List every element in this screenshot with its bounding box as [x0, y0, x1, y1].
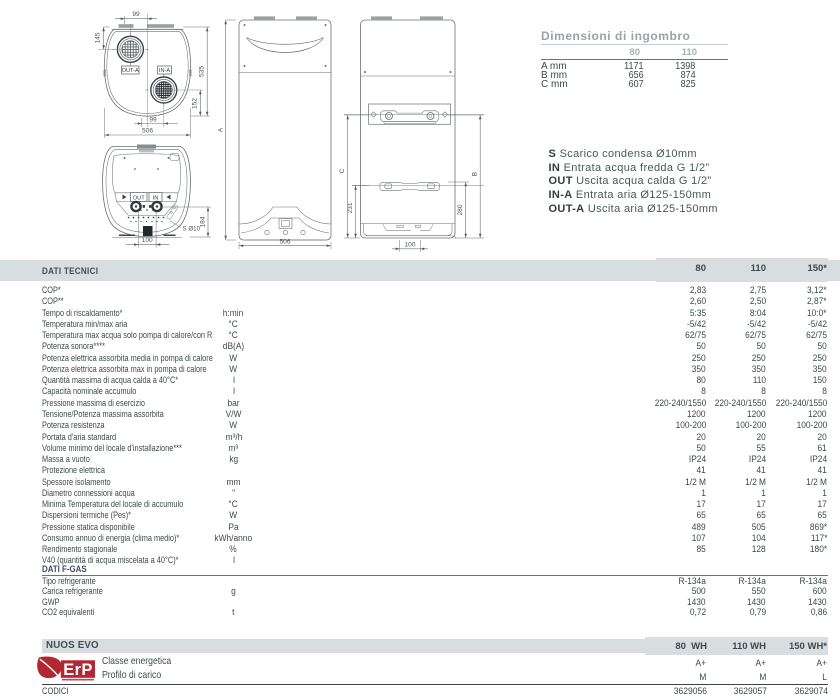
svg-text:OUT-A: OUT-A — [122, 68, 139, 74]
svg-text:ErP: ErP — [63, 661, 93, 679]
svg-text:152: 152 — [192, 98, 199, 109]
svg-text:100: 100 — [142, 237, 153, 244]
svg-text:S Ø10: S Ø10 — [183, 226, 201, 233]
svg-text:OUT: OUT — [133, 195, 146, 201]
svg-text:IN: IN — [153, 195, 159, 201]
svg-text:231: 231 — [347, 202, 354, 213]
svg-text:99: 99 — [132, 11, 140, 18]
svg-text:506: 506 — [279, 238, 290, 245]
svg-text:535: 535 — [199, 66, 206, 77]
svg-text:99: 99 — [149, 116, 157, 123]
svg-text:280: 280 — [457, 204, 464, 215]
svg-text:C: C — [339, 168, 346, 173]
svg-text:B: B — [471, 171, 478, 176]
svg-text:506: 506 — [142, 128, 153, 135]
svg-text:IN-A: IN-A — [159, 68, 170, 74]
svg-text:145: 145 — [95, 32, 102, 43]
svg-text:A: A — [217, 127, 224, 132]
svg-text:100: 100 — [404, 241, 415, 248]
svg-text:184: 184 — [199, 216, 206, 227]
